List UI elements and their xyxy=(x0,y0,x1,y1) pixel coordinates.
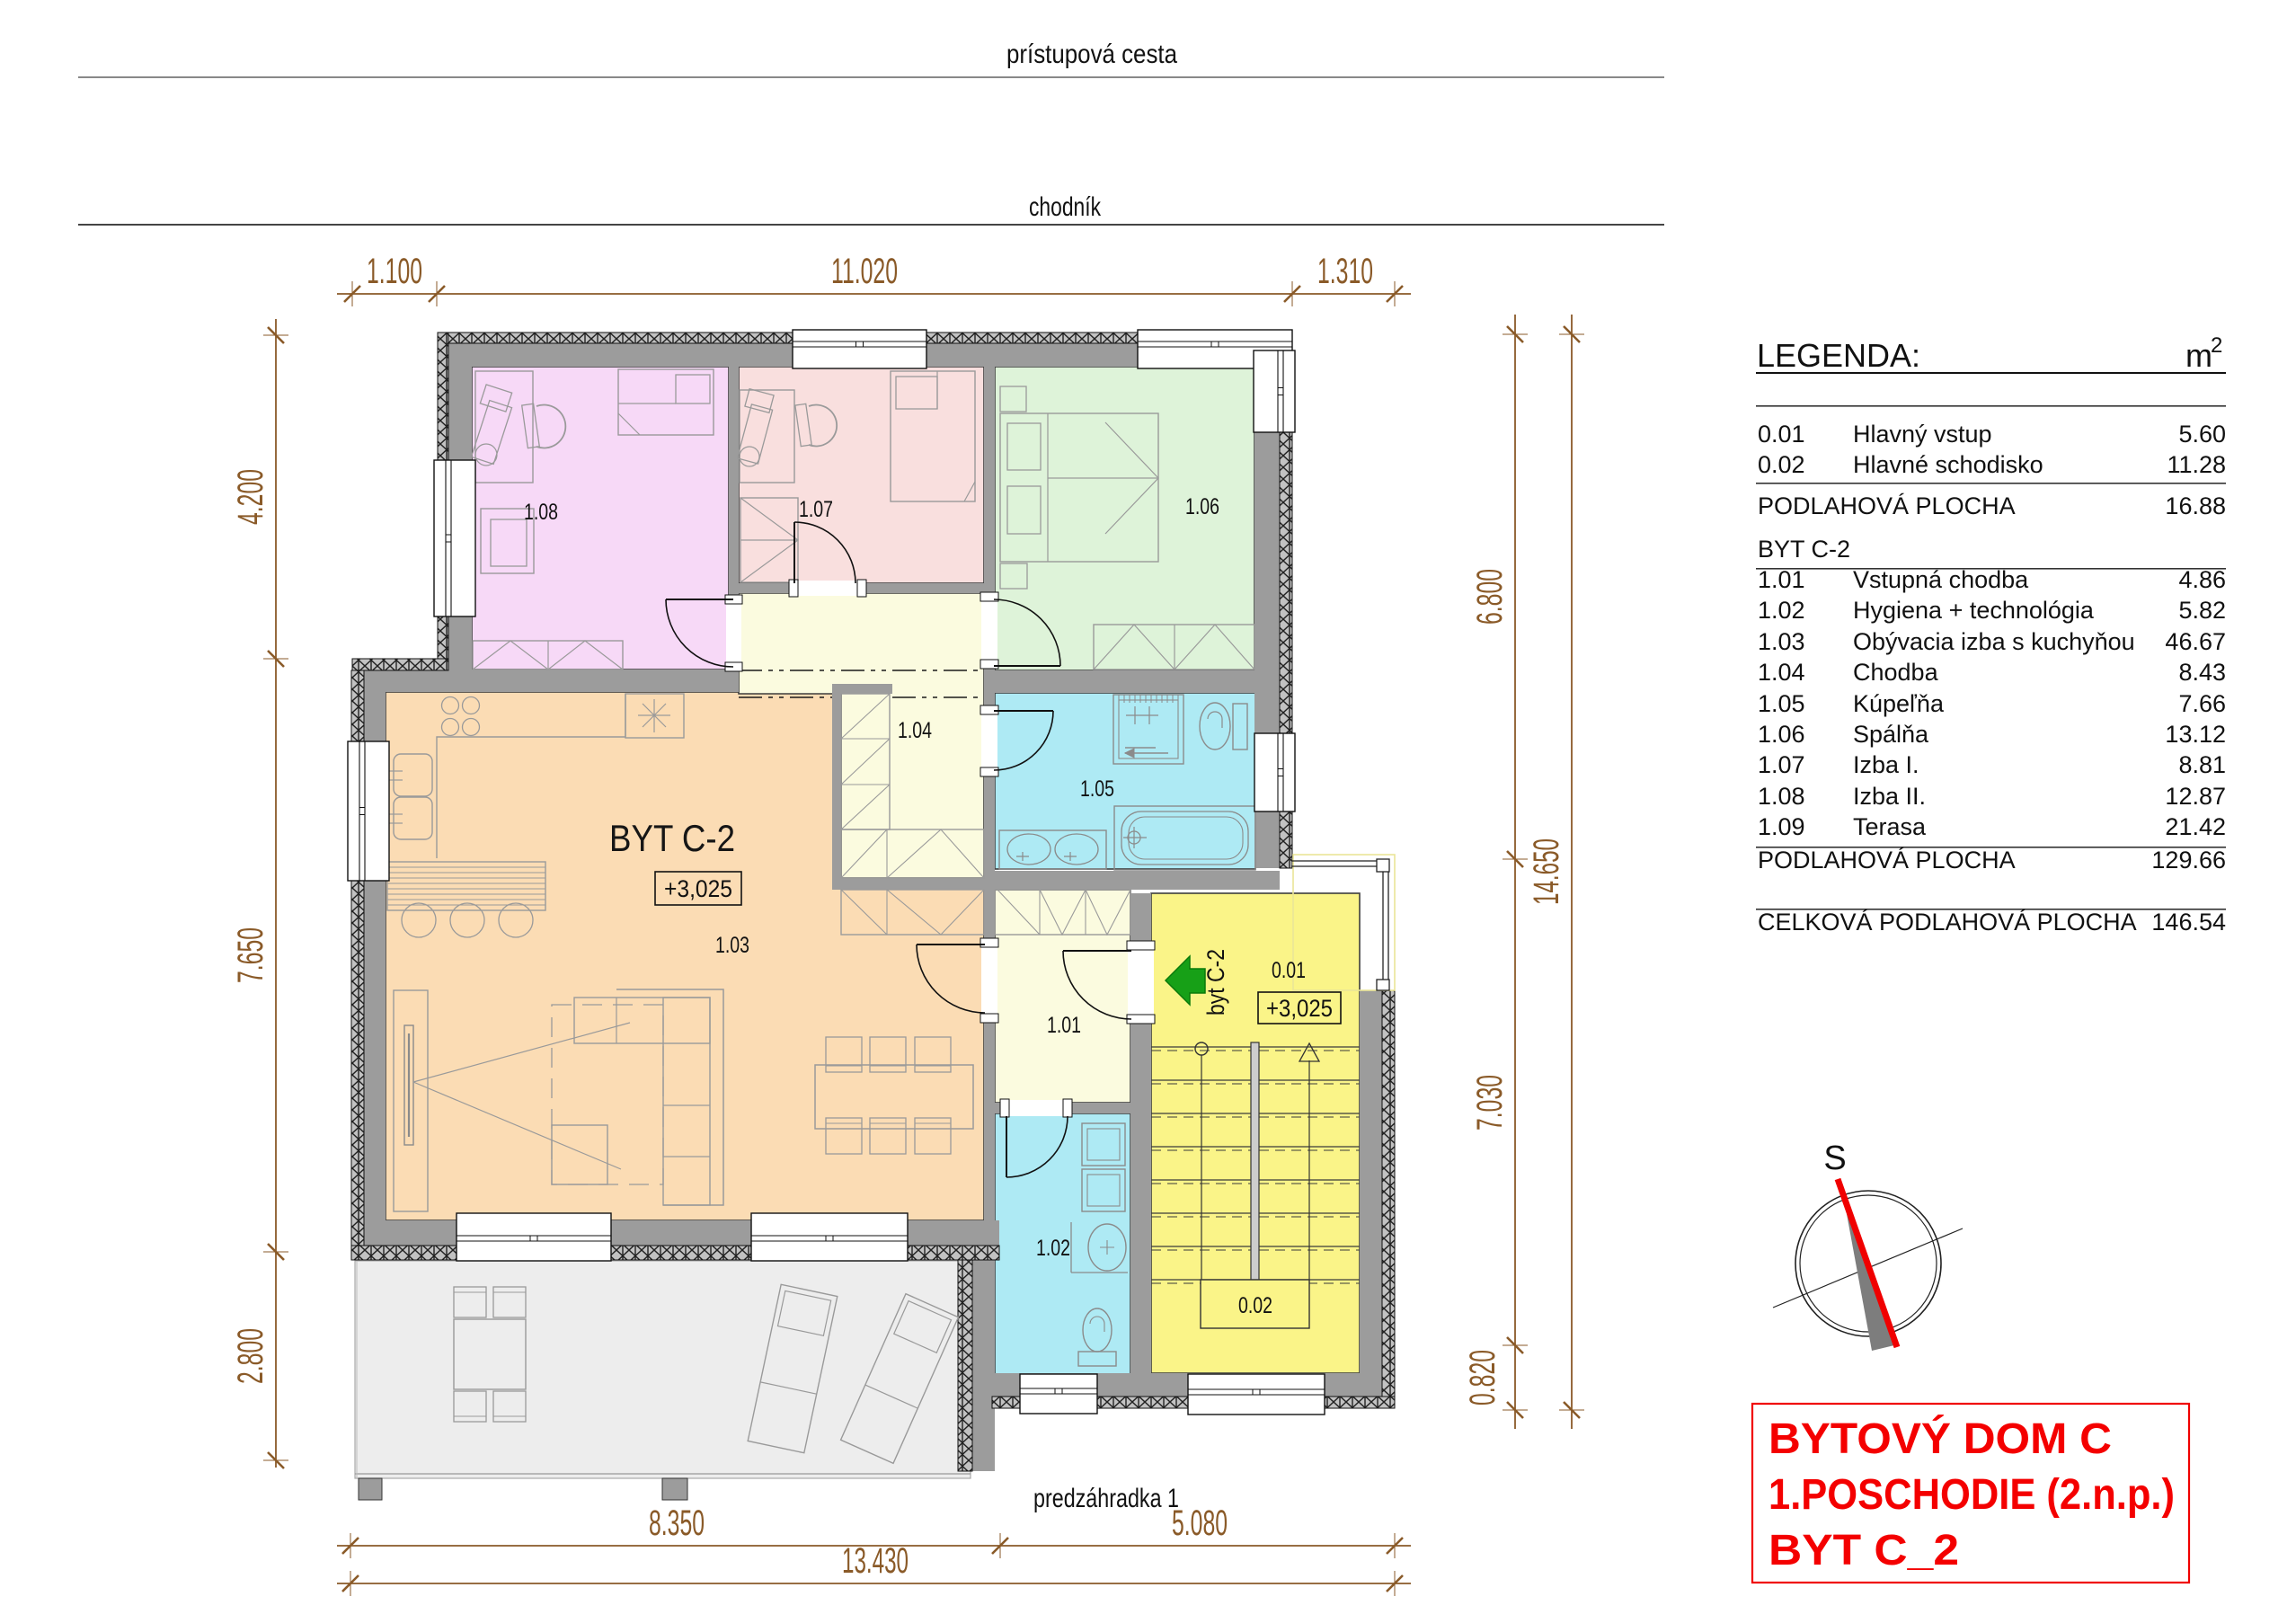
svg-text:1.08: 1.08 xyxy=(1758,783,1805,810)
svg-text:prístupová cesta: prístupová cesta xyxy=(1006,40,1177,69)
svg-text:1.05: 1.05 xyxy=(1080,776,1114,802)
svg-text:1.100: 1.100 xyxy=(367,252,422,291)
svg-text:1.01: 1.01 xyxy=(1047,1013,1081,1038)
svg-text:21.42: 21.42 xyxy=(2165,813,2226,840)
svg-text:6.800: 6.800 xyxy=(1470,569,1510,625)
svg-text:8.350: 8.350 xyxy=(649,1503,705,1543)
svg-text:Spálňa: Spálňa xyxy=(1853,721,1929,748)
svg-text:LEGENDA:: LEGENDA: xyxy=(1757,337,1920,374)
svg-text:146.54: 146.54 xyxy=(2151,909,2226,936)
svg-text:5.82: 5.82 xyxy=(2178,597,2226,624)
svg-text:Hygiena + technológia: Hygiena + technológia xyxy=(1853,597,2095,624)
svg-text:byt C-2: byt C-2 xyxy=(1202,949,1229,1015)
svg-text:1.POSCHODIE (2.n.p.): 1.POSCHODIE (2.n.p.) xyxy=(1769,1471,2175,1519)
svg-text:1.09: 1.09 xyxy=(1758,813,1805,840)
svg-text:chodník: chodník xyxy=(1029,192,1102,222)
svg-text:PODLAHOVÁ PLOCHA: PODLAHOVÁ PLOCHA xyxy=(1758,492,2016,519)
svg-text:8.81: 8.81 xyxy=(2178,751,2226,778)
svg-text:Obývacia izba s kuchyňou: Obývacia izba s kuchyňou xyxy=(1853,628,2135,655)
svg-text:14.650: 14.650 xyxy=(1527,838,1566,905)
svg-text:5.60: 5.60 xyxy=(2178,421,2226,448)
svg-text:Izba I.: Izba I. xyxy=(1853,751,1919,778)
svg-text:Terasa: Terasa xyxy=(1853,813,1927,840)
svg-text:1.07: 1.07 xyxy=(799,497,833,522)
svg-text:Izba II.: Izba II. xyxy=(1853,783,1926,810)
svg-text:1.02: 1.02 xyxy=(1036,1236,1070,1261)
svg-text:CELKOVÁ PODLAHOVÁ PLOCHA: CELKOVÁ PODLAHOVÁ PLOCHA xyxy=(1758,909,2137,936)
svg-text:11.28: 11.28 xyxy=(2167,451,2226,478)
svg-text:0.01: 0.01 xyxy=(1272,958,1306,983)
svg-text:2: 2 xyxy=(2211,333,2222,358)
svg-text:Kúpeľňa: Kúpeľňa xyxy=(1853,690,1945,717)
svg-text:0.820: 0.820 xyxy=(1463,1350,1503,1406)
svg-text:8.43: 8.43 xyxy=(2178,659,2226,686)
svg-text:Vstupná chodba: Vstupná chodba xyxy=(1853,566,2029,593)
svg-text:BYT C_2: BYT C_2 xyxy=(1769,1527,1959,1574)
svg-text:1.06: 1.06 xyxy=(1758,721,1805,748)
svg-text:2.800: 2.800 xyxy=(231,1328,270,1384)
svg-text:4.86: 4.86 xyxy=(2178,566,2226,593)
svg-text:1.03: 1.03 xyxy=(715,933,749,958)
svg-text:Chodba: Chodba xyxy=(1853,659,1939,686)
svg-text:129.66: 129.66 xyxy=(2151,847,2226,874)
svg-text:12.87: 12.87 xyxy=(2165,783,2226,810)
svg-text:0.02: 0.02 xyxy=(1758,451,1805,478)
svg-text:7.030: 7.030 xyxy=(1470,1075,1510,1131)
svg-text:1.06: 1.06 xyxy=(1185,494,1219,519)
svg-text:1.01: 1.01 xyxy=(1758,566,1805,593)
svg-text:m: m xyxy=(2185,337,2212,374)
svg-text:13.12: 13.12 xyxy=(2165,721,2226,748)
svg-text:7.650: 7.650 xyxy=(231,927,270,983)
svg-text:7.66: 7.66 xyxy=(2178,690,2226,717)
svg-text:+3,025: +3,025 xyxy=(664,875,732,902)
svg-text:1.03: 1.03 xyxy=(1758,628,1805,655)
svg-text:1.310: 1.310 xyxy=(1317,252,1373,291)
svg-text:1.05: 1.05 xyxy=(1758,690,1805,717)
svg-text:5.080: 5.080 xyxy=(1172,1503,1228,1543)
svg-text:46.67: 46.67 xyxy=(2165,628,2226,655)
svg-text:1.02: 1.02 xyxy=(1758,597,1805,624)
svg-text:Hlavné schodisko: Hlavné schodisko xyxy=(1853,451,2043,478)
svg-text:1.07: 1.07 xyxy=(1758,751,1805,778)
svg-text:13.430: 13.430 xyxy=(842,1541,909,1581)
svg-text:16.88: 16.88 xyxy=(2165,492,2226,519)
svg-text:1.04: 1.04 xyxy=(1758,659,1805,686)
svg-text:0.02: 0.02 xyxy=(1238,1293,1272,1318)
svg-text:1.08: 1.08 xyxy=(524,500,558,525)
svg-text:+3,025: +3,025 xyxy=(1266,995,1333,1022)
svg-text:predzáhradka 1: predzáhradka 1 xyxy=(1033,1484,1179,1513)
svg-text:BYTOVÝ DOM C: BYTOVÝ DOM C xyxy=(1769,1415,2112,1463)
svg-text:BYT C-2: BYT C-2 xyxy=(609,817,735,859)
svg-text:4.200: 4.200 xyxy=(231,469,270,525)
svg-text:BYT C-2: BYT C-2 xyxy=(1758,536,1850,563)
svg-text:0.01: 0.01 xyxy=(1758,421,1805,448)
svg-text:S: S xyxy=(1823,1140,1846,1177)
svg-text:11.020: 11.020 xyxy=(831,252,898,291)
svg-text:Hlavný vstup: Hlavný vstup xyxy=(1853,421,1992,448)
svg-text:PODLAHOVÁ PLOCHA: PODLAHOVÁ PLOCHA xyxy=(1758,847,2016,874)
svg-text:1.04: 1.04 xyxy=(898,718,932,743)
